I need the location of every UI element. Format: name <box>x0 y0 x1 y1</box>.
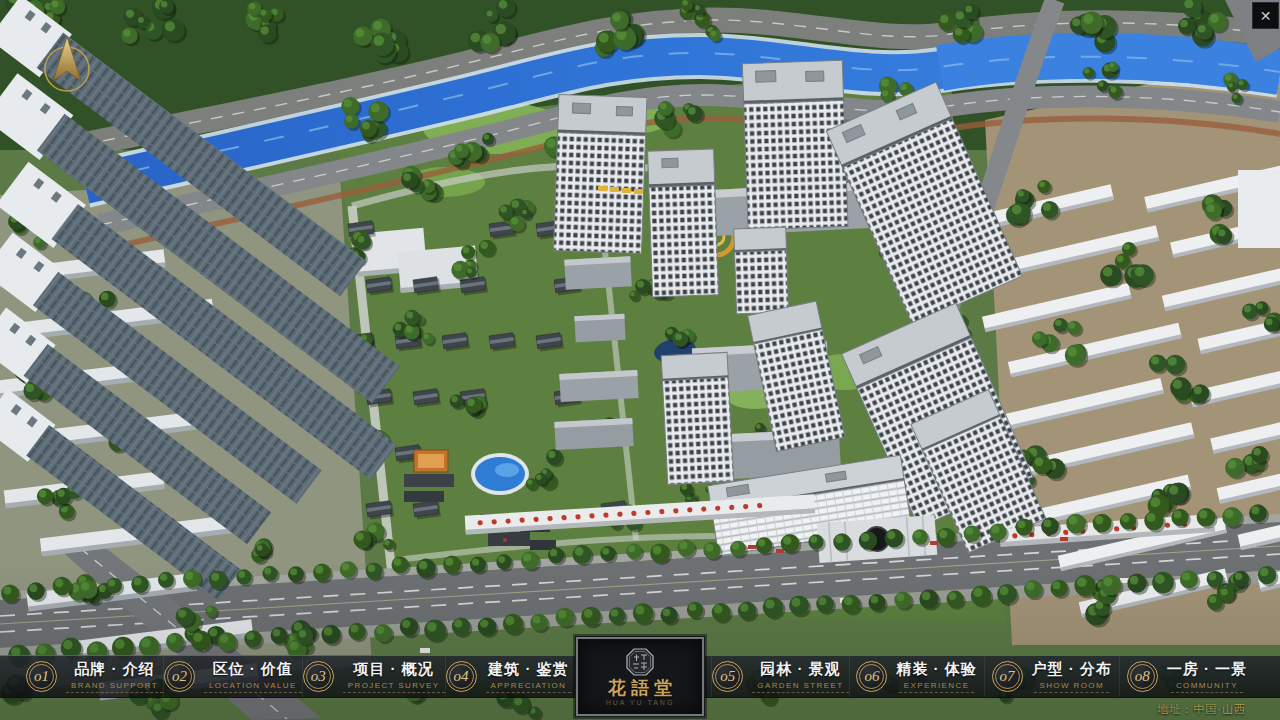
nav-number-badge: o5 <box>712 661 743 692</box>
nav-label-en: EXPERIENCE <box>899 681 975 693</box>
nav-number-badge: o3 <box>303 661 334 692</box>
aerial-map-render[interactable] <box>0 0 1280 720</box>
project-logo-panel[interactable]: 花語堂 HUA YU TANG <box>576 637 704 716</box>
nav-item-project[interactable]: o3 项目 · 概况PROJECT SURVEY <box>302 656 445 697</box>
nav-item-location[interactable]: o2 区位 · 价值LOCATION VALUE <box>163 656 302 697</box>
nav-number: o3 <box>311 669 326 684</box>
nav-label-zh: 项目 · 概况 <box>353 660 433 679</box>
nav-label-zh: 区位 · 价值 <box>213 660 293 679</box>
nav-label-en: SHOW ROOM <box>1034 681 1109 693</box>
nav-item-floorplan[interactable]: o7 户型 · 分布SHOW ROOM <box>984 656 1119 697</box>
nav-number: o5 <box>720 669 735 684</box>
nav-item-brand[interactable]: o1 品牌 · 介绍BRAND SUPPORT <box>26 656 163 697</box>
nav-number-badge: o8 <box>1127 661 1158 692</box>
nav-label-zh: 精装 · 体验 <box>896 660 976 679</box>
nav-group-left: o1 品牌 · 介绍BRAND SUPPORT o2 区位 · 价值LOCATI… <box>26 656 571 697</box>
nav-item-garden[interactable]: o5 园林 · 景观GARDEN STREET <box>711 656 848 697</box>
hua-yu-tang-seal-icon <box>626 648 654 676</box>
east-tower-block <box>1238 170 1280 248</box>
project-title: 花語堂 <box>608 678 677 698</box>
close-icon: ✕ <box>1260 8 1272 24</box>
presentation-stage: ✕ o1 品牌 · 介绍BRAND SUPPORT o2 区位 · 价值LOCA… <box>0 0 1280 720</box>
nav-number-badge: o6 <box>856 661 887 692</box>
nav-number: o4 <box>454 669 469 684</box>
nav-number: o7 <box>1000 669 1015 684</box>
nav-label-en: PROJECT SURVEY <box>343 681 445 693</box>
nav-number-badge: o2 <box>164 661 195 692</box>
nav-number-badge: o7 <box>992 661 1023 692</box>
nav-number: o1 <box>34 669 49 684</box>
close-button[interactable]: ✕ <box>1252 2 1279 29</box>
nav-item-views[interactable]: o8 一房 · 一景COMMUNITY <box>1119 656 1254 697</box>
nav-label-zh: 一房 · 一景 <box>1167 660 1247 679</box>
nav-label-zh: 户型 · 分布 <box>1032 660 1112 679</box>
nav-item-interior[interactable]: o6 精装 · 体验EXPERIENCE <box>849 656 984 697</box>
address-label: 地址：中国·山西 <box>1157 702 1246 717</box>
nav-label-en: BRAND SUPPORT <box>66 681 163 693</box>
project-subtitle: HUA YU TANG <box>606 699 675 706</box>
compass-icon <box>38 34 96 96</box>
nav-number: o8 <box>1135 669 1150 684</box>
nav-number-badge: o1 <box>26 661 57 692</box>
nav-number-badge: o4 <box>446 661 477 692</box>
nav-label-en: COMMUNITY <box>1171 681 1243 693</box>
nav-label-en: LOCATION VALUE <box>204 681 302 693</box>
nav-number: o6 <box>864 669 879 684</box>
nav-label-zh: 园林 · 景观 <box>760 660 840 679</box>
nav-label-en: GARDEN STREET <box>752 681 848 693</box>
nav-group-right: o5 园林 · 景观GARDEN STREET o6 精装 · 体验EXPERI… <box>711 656 1254 697</box>
nav-label-en: APPRECIATION <box>486 681 572 693</box>
nav-label-zh: 品牌 · 介绍 <box>74 660 154 679</box>
nav-item-architecture[interactable]: o4 建筑 · 鉴赏APPRECIATION <box>445 656 572 697</box>
nav-number: o2 <box>172 669 187 684</box>
nav-label-zh: 建筑 · 鉴赏 <box>488 660 568 679</box>
